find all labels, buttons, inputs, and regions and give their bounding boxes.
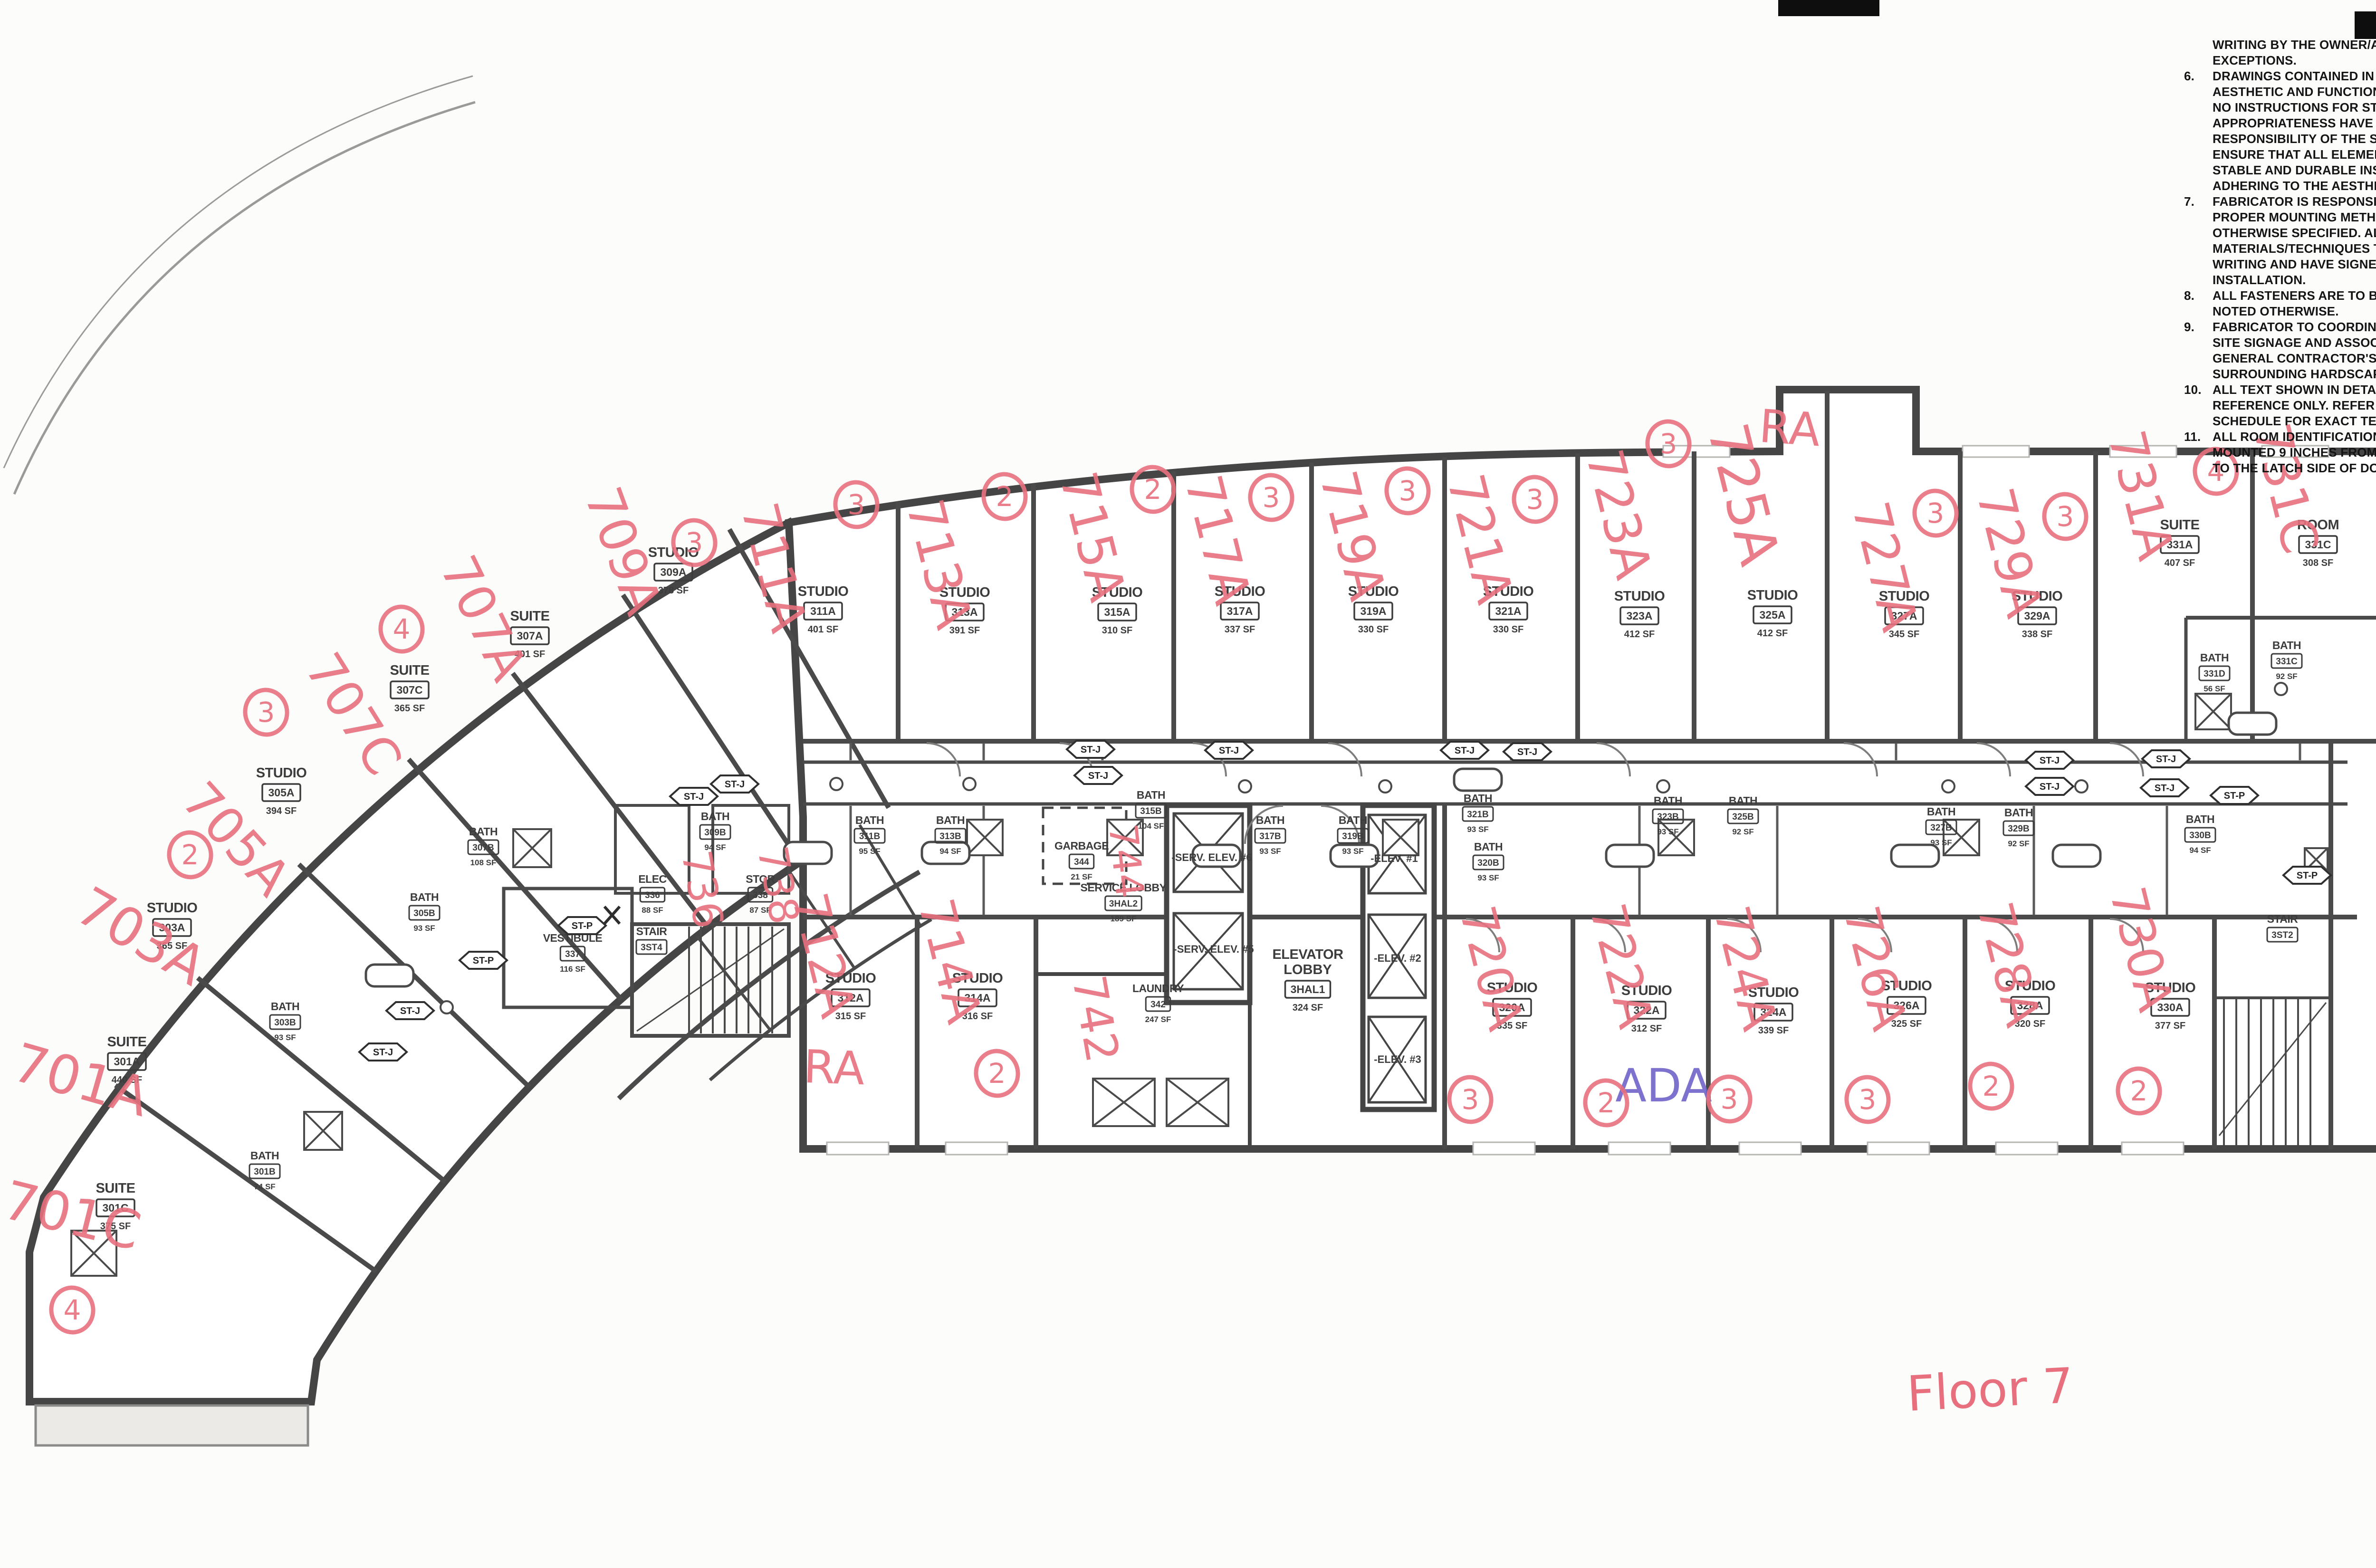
room-area: 95 SF — [859, 847, 880, 856]
note-text: WRITING AND HAVE SIGNED APPROVAL PRIO — [2213, 257, 2376, 272]
circled-count-number: 3 — [1263, 481, 1280, 514]
room-id: 305A — [268, 786, 295, 799]
keynote-hex: ST-J — [2141, 779, 2188, 796]
room-type: BATH — [410, 891, 439, 903]
note-number: 10. — [2184, 382, 2213, 398]
room-id: 336 — [645, 890, 660, 900]
room-id: 309A — [661, 566, 687, 578]
note-text: SITE SIGNAGE AND ASSOCIATED FOOTINGS W — [2213, 335, 2376, 351]
note-line: WRITING BY THE OWNER/ARCHITECT. NO — [2184, 37, 2376, 53]
note-line: 8.ALL FASTENERS ARE TO BE CONCEALED UNLE — [2184, 288, 2376, 304]
keynote-label: ST-P — [572, 921, 593, 931]
elevator-label: -ELEV. #2 — [1374, 952, 1421, 964]
room-area: 94 SF — [2189, 846, 2211, 855]
keynote-label: ST-P — [2224, 791, 2245, 801]
circled-count-number: 3 — [1927, 497, 1945, 529]
room-label: BATH317B93 SF — [1255, 814, 1285, 856]
room-type: -SERV. ELEV. #6 — [1171, 851, 1252, 863]
room-area: 324 SF — [1293, 1003, 1323, 1013]
room-area: 93 SF — [1657, 827, 1678, 836]
floor-title: Floor 7 — [1906, 1358, 2075, 1423]
room-area: 189 SF — [1111, 914, 1137, 923]
room-label: SUITE307C365 SF — [390, 663, 430, 714]
room-label: BATH320B93 SF — [1473, 841, 1504, 882]
room-area: 412 SF — [1757, 628, 1788, 639]
room-type: BATH — [1927, 805, 1955, 818]
circled-count-number: 3 — [686, 526, 703, 559]
note-text: PROPER MOUNTING METHODS FOR SIGNS UI — [2213, 210, 2376, 225]
keynote-hex: ST-P — [2283, 867, 2331, 884]
room-type: BATH — [2186, 813, 2214, 825]
keynote-label: ST-J — [2040, 755, 2060, 766]
note-line: SITE SIGNAGE AND ASSOCIATED FOOTINGS W — [2184, 335, 2376, 351]
handwritten-room-number: RA — [803, 1040, 865, 1095]
room-area: 377 SF — [2155, 1021, 2185, 1031]
note-line: GENERAL CONTRACTOR'S INSTALLATION OF T — [2184, 351, 2376, 366]
room-type: ELEVATOR — [1272, 947, 1343, 962]
room-type: BATH — [1339, 814, 1367, 826]
room-id: 3ST4 — [641, 943, 662, 953]
room-label: BATH301B74 SF — [249, 1149, 280, 1191]
note-line: ENSURE THAT ALL ELEMENTS ARE FABRICATE — [2184, 147, 2376, 163]
handwritten-room-number: ADA — [1615, 1059, 1712, 1112]
terrace — [36, 1405, 308, 1445]
room-area: 338 SF — [2022, 629, 2052, 640]
room-id: 315B — [1140, 806, 1161, 816]
note-line: MOUNTED 9 INCHES FROM THE CENTER OF T — [2184, 445, 2376, 460]
room-area: 247 SF — [1145, 1015, 1171, 1024]
room-area: 93 SF — [413, 924, 435, 933]
keynote-hex: ST-J — [1067, 741, 1114, 758]
keynote-label: ST-J — [1088, 771, 1108, 781]
note-line: OTHERWISE SPECIFIED. ALL MOUNTING — [2184, 225, 2376, 241]
room-label: BATH319B93 SF — [1338, 814, 1368, 856]
circled-count-number: 3 — [848, 488, 865, 521]
keynote-hex: ST-J — [359, 1043, 407, 1061]
room-label: BATH309B94 SF — [700, 810, 730, 852]
note-line: 7.FABRICATOR IS RESPONSIBLE FOR DETERMIN — [2184, 194, 2376, 210]
keynote-label: ST-J — [373, 1047, 393, 1058]
room-id: 301B — [254, 1167, 275, 1177]
note-text: ALL ROOM IDENTIFICATIONS SIGNS ARE TO BI — [2213, 429, 2376, 445]
room-id: 313B — [939, 832, 961, 841]
room-type: -ELEV. #3 — [1374, 1053, 1421, 1065]
note-line: INSTALLATION. — [2184, 272, 2376, 288]
note-text: TO THE LATCH SIDE OF DOOR FRAME. — [2213, 460, 2376, 476]
note-text: FABRICATOR TO COORDINATE THE INSTALLAT — [2213, 319, 2376, 335]
note-text: SURROUNDING HARDSCAPE. — [2213, 366, 2376, 382]
room-type: ELEC — [638, 873, 666, 885]
room-area: 94 SF — [939, 847, 961, 856]
scanned-floor-plan-page: SUITE301C375 SFSUITE301A440 SFSTUDIO303A… — [0, 0, 2376, 1568]
note-line: PROPER MOUNTING METHODS FOR SIGNS UI — [2184, 210, 2376, 225]
room-area: 401 SF — [808, 624, 838, 635]
circled-count-number: 2 — [1983, 1070, 2000, 1102]
keynote-label: ST-J — [1219, 746, 1239, 756]
room-type: BATH — [701, 810, 729, 822]
room-type: BATH — [1464, 792, 1492, 804]
circled-count-number: 3 — [1526, 483, 1544, 516]
room-id: 327B — [1930, 823, 1952, 833]
note-number: 8. — [2184, 288, 2213, 304]
room-id: 3ST2 — [2271, 930, 2293, 940]
note-line: RESPONSIBILITY OF THE SIGNAGE FABRICATO — [2184, 131, 2376, 147]
keynote-hex: ST-J — [2026, 778, 2073, 795]
circled-count-number: 3 — [258, 696, 275, 728]
room-id: 315A — [1104, 606, 1131, 618]
note-line: 9.FABRICATOR TO COORDINATE THE INSTALLAT — [2184, 319, 2376, 335]
keynote-label: ST-J — [2156, 754, 2176, 765]
circled-count-number: 2 — [2130, 1075, 2148, 1107]
room-type: BATH — [1474, 841, 1503, 853]
circled-count-number: 2 — [1144, 473, 1162, 506]
room-id: 307B — [472, 843, 494, 853]
room-id: 3HAL1 — [1291, 983, 1325, 995]
room-id: 342 — [1150, 1000, 1166, 1010]
circled-count-number: 3 — [2057, 500, 2074, 533]
room-id: 303B — [274, 1018, 296, 1028]
note-number: 6. — [2184, 68, 2213, 84]
room-area: 330 SF — [1493, 624, 1523, 635]
room-area: 93 SF — [1467, 825, 1488, 834]
room-type: STAIR — [636, 925, 668, 937]
room-label: BATH323B93 SF — [1653, 794, 1683, 836]
room-id: 325A — [1760, 609, 1786, 621]
note-text: STABLE AND DURABLE INSTALLATION WHILE — [2213, 163, 2376, 178]
circled-count-number: 2 — [1598, 1087, 1615, 1119]
room-area: 56 SF — [2204, 684, 2225, 693]
note-text: APPROPRIATENESS HAVE BEEN MADE. IT IS T — [2213, 115, 2376, 131]
note-line: REFERENCE ONLY. REFER TO SIGNAGE MESSA — [2184, 398, 2376, 413]
scan-artifact-bar-corner — [2355, 11, 2376, 39]
note-line: ADHERING TO THE AESTHETIC DETAILS INDIC. — [2184, 178, 2376, 194]
note-text: OTHERWISE SPECIFIED. ALL MOUNTING — [2213, 225, 2376, 241]
room-type: SUITE — [107, 1034, 147, 1050]
note-text: MATERIALS/TECHNIQUES TO BE APPROVED II — [2213, 241, 2376, 257]
room-id: 325B — [1732, 812, 1753, 822]
keynote-label: ST-J — [684, 792, 704, 802]
room-area: 394 SF — [266, 806, 297, 816]
note-text: NOTED OTHERWISE. — [2213, 304, 2339, 319]
room-type: BATH — [936, 814, 965, 826]
keynote-label: ST-J — [1081, 745, 1101, 755]
keynote-label: ST-P — [473, 956, 494, 966]
circled-count-number: 3 — [1721, 1083, 1738, 1115]
note-text: SCHEDULE FOR EXACT TEXT ON EACH SIGN. — [2213, 413, 2376, 429]
room-id: 337 — [565, 949, 580, 959]
circled-count-number: 4 — [64, 1294, 81, 1326]
room-area: 88 SF — [642, 906, 663, 915]
keynote-hex: ST-P — [558, 917, 606, 934]
note-text: RESPONSIBILITY OF THE SIGNAGE FABRICATO — [2213, 131, 2376, 147]
room-id: 317A — [1227, 605, 1253, 617]
room-type: BATH — [469, 825, 498, 838]
room-label: BATH327B93 SF — [1926, 805, 1956, 847]
room-type: -SERV. ELEV. #5 — [1173, 943, 1254, 955]
note-text: ALL TEXT SHOWN IN DETAIL DRAWINGS IS FO — [2213, 382, 2376, 398]
note-line: WRITING AND HAVE SIGNED APPROVAL PRIO — [2184, 257, 2376, 272]
room-type-2: LOBBY — [1284, 962, 1332, 977]
note-line: NOTED OTHERWISE. — [2184, 304, 2376, 319]
handwritten-room-number: 744 — [1100, 822, 1152, 900]
room-id: 321B — [1467, 810, 1488, 820]
elevator-label: -ELEV. #1 — [1370, 852, 1418, 864]
note-line: 11.ALL ROOM IDENTIFICATIONS SIGNS ARE TO… — [2184, 429, 2376, 445]
room-area: 93 SF — [1342, 847, 1363, 856]
room-id: 330B — [2189, 831, 2211, 841]
room-label: BATH307B108 SF — [468, 825, 498, 867]
keynote-hex: ST-J — [1074, 767, 1122, 784]
room-type: BATH — [1729, 794, 1757, 807]
circled-count-number: 2 — [996, 480, 1014, 513]
room-area: 337 SF — [1225, 624, 1255, 635]
room-area: 330 SF — [1358, 624, 1389, 635]
room-type: BATH — [2272, 639, 2301, 651]
keynote-label: ST-J — [2040, 782, 2060, 792]
note-text: ADHERING TO THE AESTHETIC DETAILS INDIC. — [2213, 178, 2376, 194]
room-type: STUDIO — [1614, 589, 1665, 604]
room-id: 329B — [2008, 824, 2029, 834]
note-line: SCHEDULE FOR EXACT TEXT ON EACH SIGN. — [2184, 413, 2376, 429]
room-area: 365 SF — [394, 703, 425, 714]
room-area: 108 SF — [470, 858, 497, 867]
circled-count: 4 — [378, 604, 425, 654]
general-notes: WRITING BY THE OWNER/ARCHITECT. NOEXCEPT… — [2184, 37, 2376, 476]
canopy-arcs — [4, 76, 475, 494]
handwritten-room-number: RA — [1757, 400, 1822, 457]
room-area: 93 SF — [1477, 873, 1499, 882]
room-id: 319A — [1360, 605, 1387, 617]
room-area: 93 SF — [1930, 838, 1952, 847]
elevator-label: -SERV. ELEV. #6 — [1171, 851, 1252, 863]
room-label: BATH313B94 SF — [935, 814, 966, 856]
room-label: BATH305B93 SF — [409, 891, 440, 933]
note-line: STABLE AND DURABLE INSTALLATION WHILE — [2184, 163, 2376, 178]
circled-count-number: 2 — [182, 839, 199, 871]
room-type: GARBAGE — [1054, 840, 1109, 852]
room-area: 310 SF — [1102, 625, 1132, 636]
room-area: 92 SF — [2276, 672, 2297, 681]
room-id: 321A — [1495, 605, 1522, 617]
note-text: DRAWINGS CONTAINED IN THIS PACKAGE AR — [2213, 68, 2376, 84]
room-id: 331C — [2276, 657, 2298, 667]
keynote-label: ST-J — [2155, 783, 2175, 794]
keynote-hex: ST-J — [1205, 742, 1253, 759]
room-label: BATH329B92 SF — [2003, 806, 2034, 848]
note-text: ENSURE THAT ALL ELEMENTS ARE FABRICATE — [2213, 147, 2376, 163]
keynote-label: ST-J — [400, 1006, 420, 1016]
circled-count-number: 3 — [1399, 475, 1417, 507]
room-area: 92 SF — [2008, 839, 2029, 848]
keynote-hex: ST-J — [1441, 742, 1488, 759]
note-text: INSTALLATION. — [2213, 272, 2306, 288]
room-area: 93 SF — [274, 1033, 296, 1042]
room-id: 320B — [1477, 858, 1499, 868]
room-area: 74 SF — [254, 1182, 275, 1191]
room-type: SUITE — [390, 663, 430, 678]
circled-count-number: 3 — [1660, 428, 1677, 460]
note-text: EXCEPTIONS. — [2213, 53, 2297, 68]
note-number: 11. — [2184, 429, 2213, 445]
note-line: SURROUNDING HARDSCAPE. — [2184, 366, 2376, 382]
room-area: 308 SF — [2303, 558, 2333, 568]
room-id: 331D — [2204, 669, 2225, 679]
room-id: 307C — [397, 684, 423, 696]
note-text: WRITING BY THE OWNER/ARCHITECT. NO — [2213, 37, 2376, 53]
room-type: STAIR — [2267, 913, 2299, 925]
elevator-label: -SERV. ELEV. #5 — [1173, 943, 1254, 955]
note-line: 6.DRAWINGS CONTAINED IN THIS PACKAGE AR — [2184, 68, 2376, 84]
keynote-label: ST-J — [1455, 746, 1475, 756]
note-number: 7. — [2184, 194, 2213, 210]
scan-artifact-bar-top — [1778, 0, 1879, 16]
note-line: NO INSTRUCTIONS FOR STRUCTURAL — [2184, 100, 2376, 115]
room-id: 323B — [1657, 812, 1678, 822]
note-text: AESTHETIC AND FUNCTIONAL DESIGN INTENT — [2213, 84, 2376, 100]
keynote-hex: ST-J — [2026, 752, 2073, 769]
room-label: BATH330B94 SF — [2185, 813, 2215, 855]
note-text: MOUNTED 9 INCHES FROM THE CENTER OF T — [2213, 445, 2376, 460]
room-id: 305B — [413, 908, 435, 918]
room-area: 407 SF — [2165, 558, 2195, 568]
note-line: TO THE LATCH SIDE OF DOOR FRAME. — [2184, 460, 2376, 476]
elevator-label: -ELEV. #3 — [1374, 1053, 1421, 1065]
room-label: BATH303B93 SF — [270, 1000, 300, 1042]
floor-plan-canvas: SUITE301C375 SFSUITE301A440 SFSTUDIO303A… — [0, 0, 2376, 1568]
keynote-hex: ST-J — [386, 1002, 434, 1019]
room-type: LAUNDRY — [1132, 982, 1184, 994]
room-type: STUDIO — [1747, 588, 1798, 603]
room-id: 309B — [704, 828, 726, 838]
keynote-label: ST-J — [725, 779, 745, 790]
room-id: 311B — [859, 832, 880, 841]
room-type: BATH — [855, 814, 884, 826]
circled-count-number: 3 — [1859, 1083, 1877, 1116]
room-type: STUDIO — [256, 765, 307, 781]
room-id: 344 — [1074, 857, 1089, 867]
room-id: 319B — [1342, 832, 1363, 841]
room-area: 412 SF — [1624, 629, 1655, 640]
room-type: BATH — [250, 1149, 279, 1162]
room-type: -ELEV. #1 — [1370, 852, 1418, 864]
room-label: BATH331C92 SF — [2271, 639, 2302, 681]
note-line: 10.ALL TEXT SHOWN IN DETAIL DRAWINGS IS … — [2184, 382, 2376, 398]
circled-count: 3 — [242, 687, 290, 737]
room-id: 3HAL2 — [1109, 899, 1138, 909]
room-label: STUDIO305A394 SF — [256, 765, 307, 816]
room-type: BATH — [2200, 651, 2229, 664]
note-text: ALL FASTENERS ARE TO BE CONCEALED UNLE — [2213, 288, 2376, 304]
note-line: APPROPRIATENESS HAVE BEEN MADE. IT IS T — [2184, 115, 2376, 131]
note-line: EXCEPTIONS. — [2184, 53, 2376, 68]
room-type: BATH — [1654, 794, 1682, 807]
room-type: BATH — [271, 1000, 299, 1013]
circled-count-number: 4 — [393, 613, 411, 645]
keynote-label: ST-J — [1517, 747, 1537, 757]
keynote-hex: ST-P — [2211, 787, 2258, 804]
room-label: BATH321B93 SF — [1463, 792, 1493, 834]
keynote-hex: ST-P — [460, 952, 507, 969]
keynote-label: ST-P — [2297, 870, 2318, 881]
note-line: MATERIALS/TECHNIQUES TO BE APPROVED II — [2184, 241, 2376, 257]
circled-count-number: 3 — [1462, 1083, 1479, 1116]
room-type: -ELEV. #2 — [1374, 952, 1421, 964]
room-type: BATH — [2004, 806, 2033, 819]
keynote-hex: ST-J — [670, 788, 718, 805]
room-area: 93 SF — [1259, 847, 1281, 856]
note-text: GENERAL CONTRACTOR'S INSTALLATION OF T — [2213, 351, 2376, 366]
keynote-hex: ST-J — [2142, 750, 2190, 767]
room-id: 323A — [1627, 610, 1653, 622]
note-text: REFERENCE ONLY. REFER TO SIGNAGE MESSA — [2213, 398, 2376, 413]
note-line: AESTHETIC AND FUNCTIONAL DESIGN INTENT — [2184, 84, 2376, 100]
note-text: NO INSTRUCTIONS FOR STRUCTURAL — [2213, 100, 2376, 115]
note-number: 9. — [2184, 319, 2213, 335]
room-type: BATH — [1256, 814, 1284, 826]
keynote-hex: ST-J — [1504, 743, 1551, 760]
room-label: BATH325B92 SF — [1728, 794, 1758, 836]
keynote-hex: ST-J — [711, 775, 758, 793]
room-area: 116 SF — [560, 965, 585, 974]
room-area: 92 SF — [1732, 827, 1753, 836]
note-text: FABRICATOR IS RESPONSIBLE FOR DETERMIN — [2213, 194, 2376, 210]
room-area: 21 SF — [1071, 872, 1092, 881]
circled-count-number: 2 — [988, 1057, 1006, 1090]
room-label: BATH331D56 SF — [2199, 651, 2230, 693]
handwritten-room-number: 703A — [66, 875, 216, 998]
room-type: BATH — [1137, 789, 1165, 801]
room-id: 317B — [1259, 832, 1281, 841]
